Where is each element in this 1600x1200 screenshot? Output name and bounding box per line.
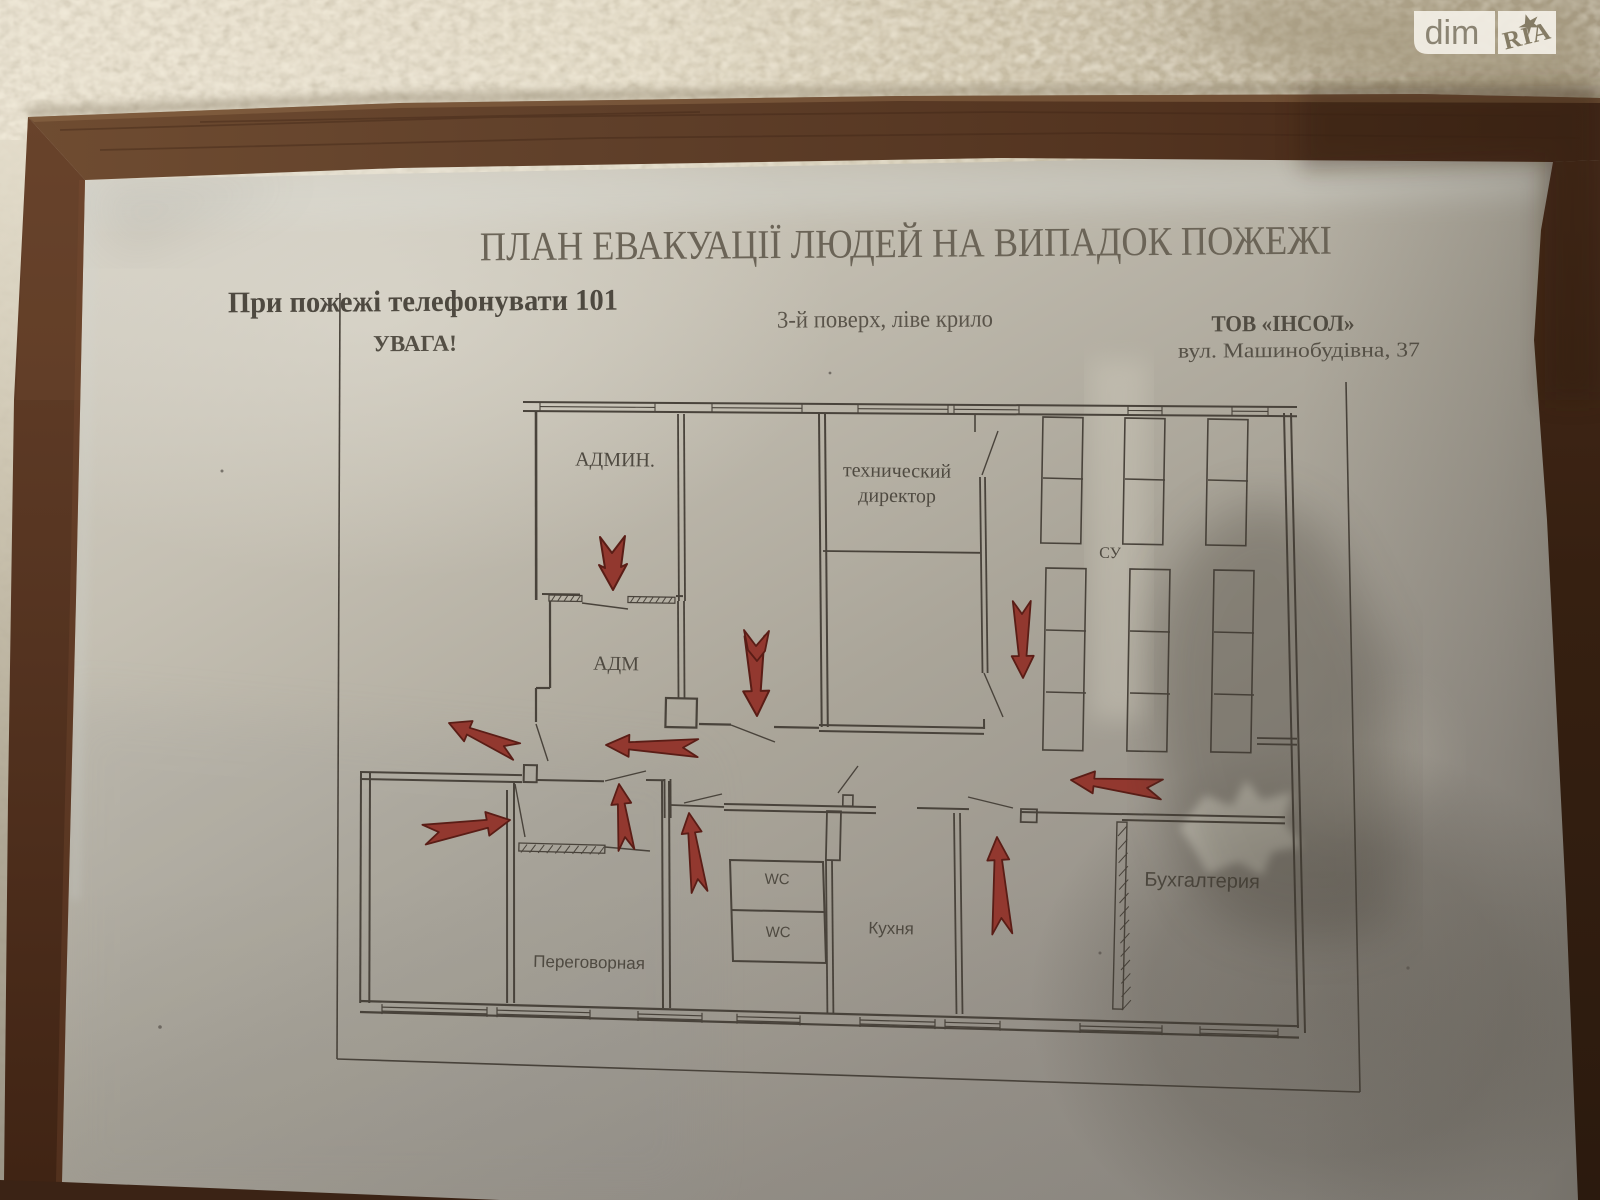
svg-text:При пожежі телефонувати 101: При пожежі телефонувати 101 — [228, 284, 618, 320]
svg-text:АДМИН.: АДМИН. — [575, 448, 655, 471]
svg-text:технический: технический — [843, 459, 952, 483]
svg-text:УВАГА!: УВАГА! — [373, 331, 457, 357]
svg-text:dim: dim — [1425, 14, 1480, 52]
svg-text:директор: директор — [858, 484, 936, 507]
svg-text:ПЛАН ЕВАКУАЦІЇ ЛЮДЕЙ НА ВИПАДО: ПЛАН ЕВАКУАЦІЇ ЛЮДЕЙ НА ВИПАДОК ПОЖЕЖІ — [480, 217, 1332, 270]
svg-text:АДМ: АДМ — [593, 653, 639, 676]
svg-text:3-й поверх, ліве крило: 3-й поверх, ліве крило — [777, 306, 993, 333]
svg-text:СУ: СУ — [1099, 545, 1122, 562]
